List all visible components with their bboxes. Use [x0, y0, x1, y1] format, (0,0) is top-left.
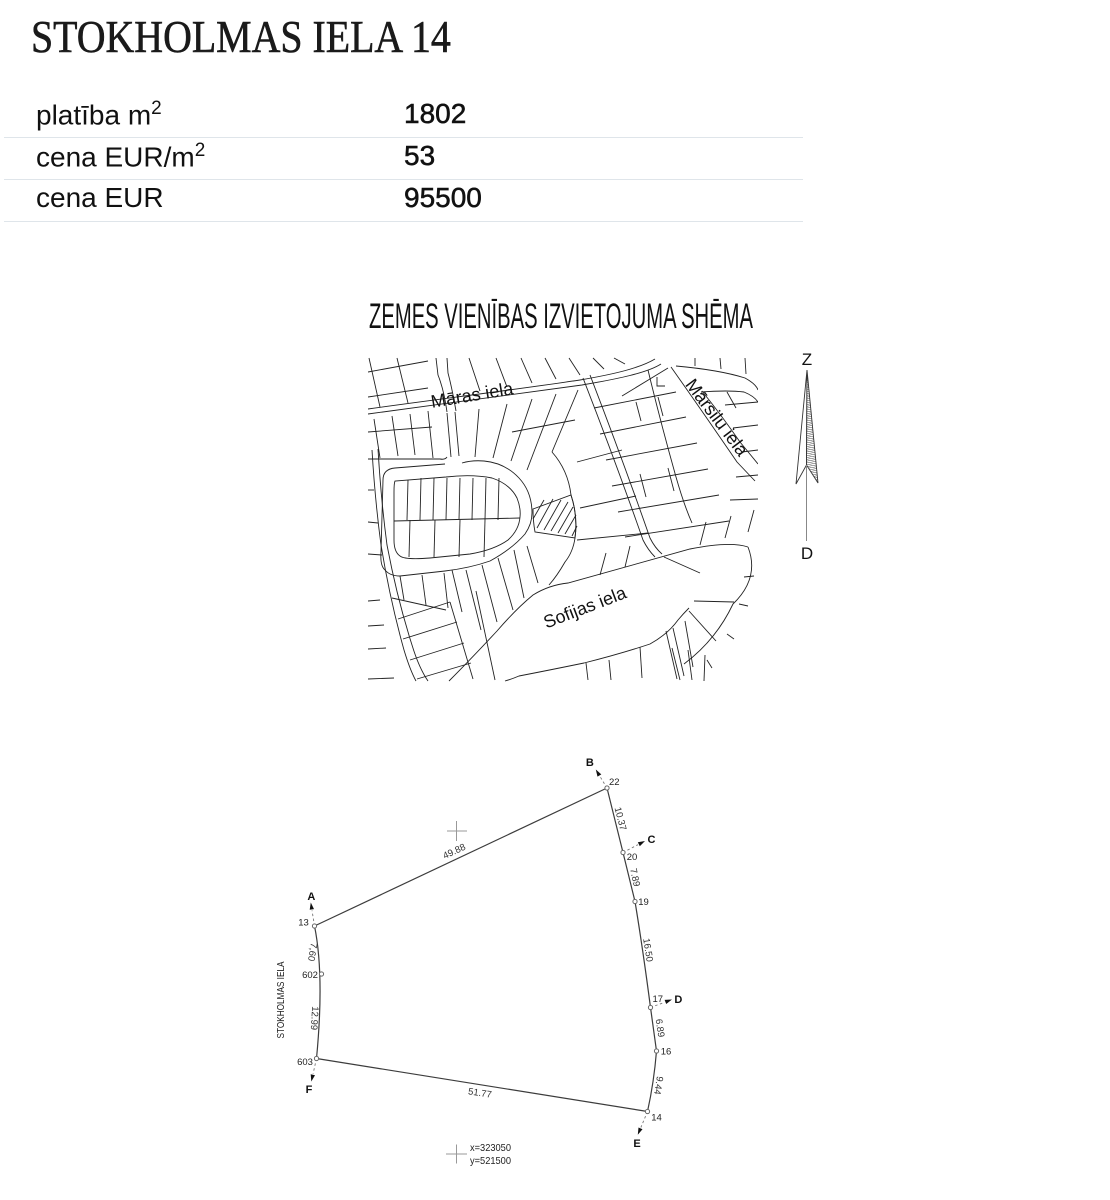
svg-text:D: D [801, 544, 813, 563]
svg-text:Sofijas iela: Sofijas iela [541, 582, 630, 632]
svg-text:E: E [633, 1138, 640, 1150]
svg-text:y=521500: y=521500 [470, 1155, 511, 1167]
svg-text:16.50: 16.50 [640, 938, 655, 963]
svg-text:17: 17 [653, 994, 664, 1005]
svg-text:22: 22 [609, 777, 620, 788]
svg-text:51.77: 51.77 [467, 1086, 492, 1100]
svg-text:F: F [306, 1084, 313, 1096]
svg-text:D: D [674, 994, 682, 1006]
svg-text:Mārsilu iela: Mārsilu iela [681, 375, 752, 461]
svg-text:14: 14 [651, 1113, 662, 1124]
svg-text:Māras iela: Māras iela [429, 378, 515, 412]
svg-text:C: C [648, 834, 656, 846]
svg-text:20: 20 [627, 852, 638, 863]
svg-text:7.89: 7.89 [627, 867, 642, 887]
svg-text:x=323050: x=323050 [470, 1142, 511, 1154]
svg-text:602: 602 [302, 970, 318, 981]
svg-text:ZEMES VIENĪBAS IZVIETOJUMA SHĒ: ZEMES VIENĪBAS IZVIETOJUMA SHĒMA [369, 297, 753, 336]
svg-text:13: 13 [298, 918, 309, 929]
svg-text:603: 603 [297, 1057, 313, 1068]
svg-text:12.99: 12.99 [308, 1006, 320, 1030]
svg-text:19: 19 [638, 897, 649, 908]
svg-text:16: 16 [661, 1047, 672, 1058]
svg-text:49.88: 49.88 [441, 842, 467, 862]
svg-text:Z: Z [802, 350, 812, 369]
svg-text:7,60: 7,60 [305, 942, 319, 962]
svg-text:A: A [307, 891, 315, 903]
svg-text:STOKHOLMAS IELA: STOKHOLMAS IELA [275, 962, 287, 1039]
svg-text:B: B [586, 757, 594, 769]
